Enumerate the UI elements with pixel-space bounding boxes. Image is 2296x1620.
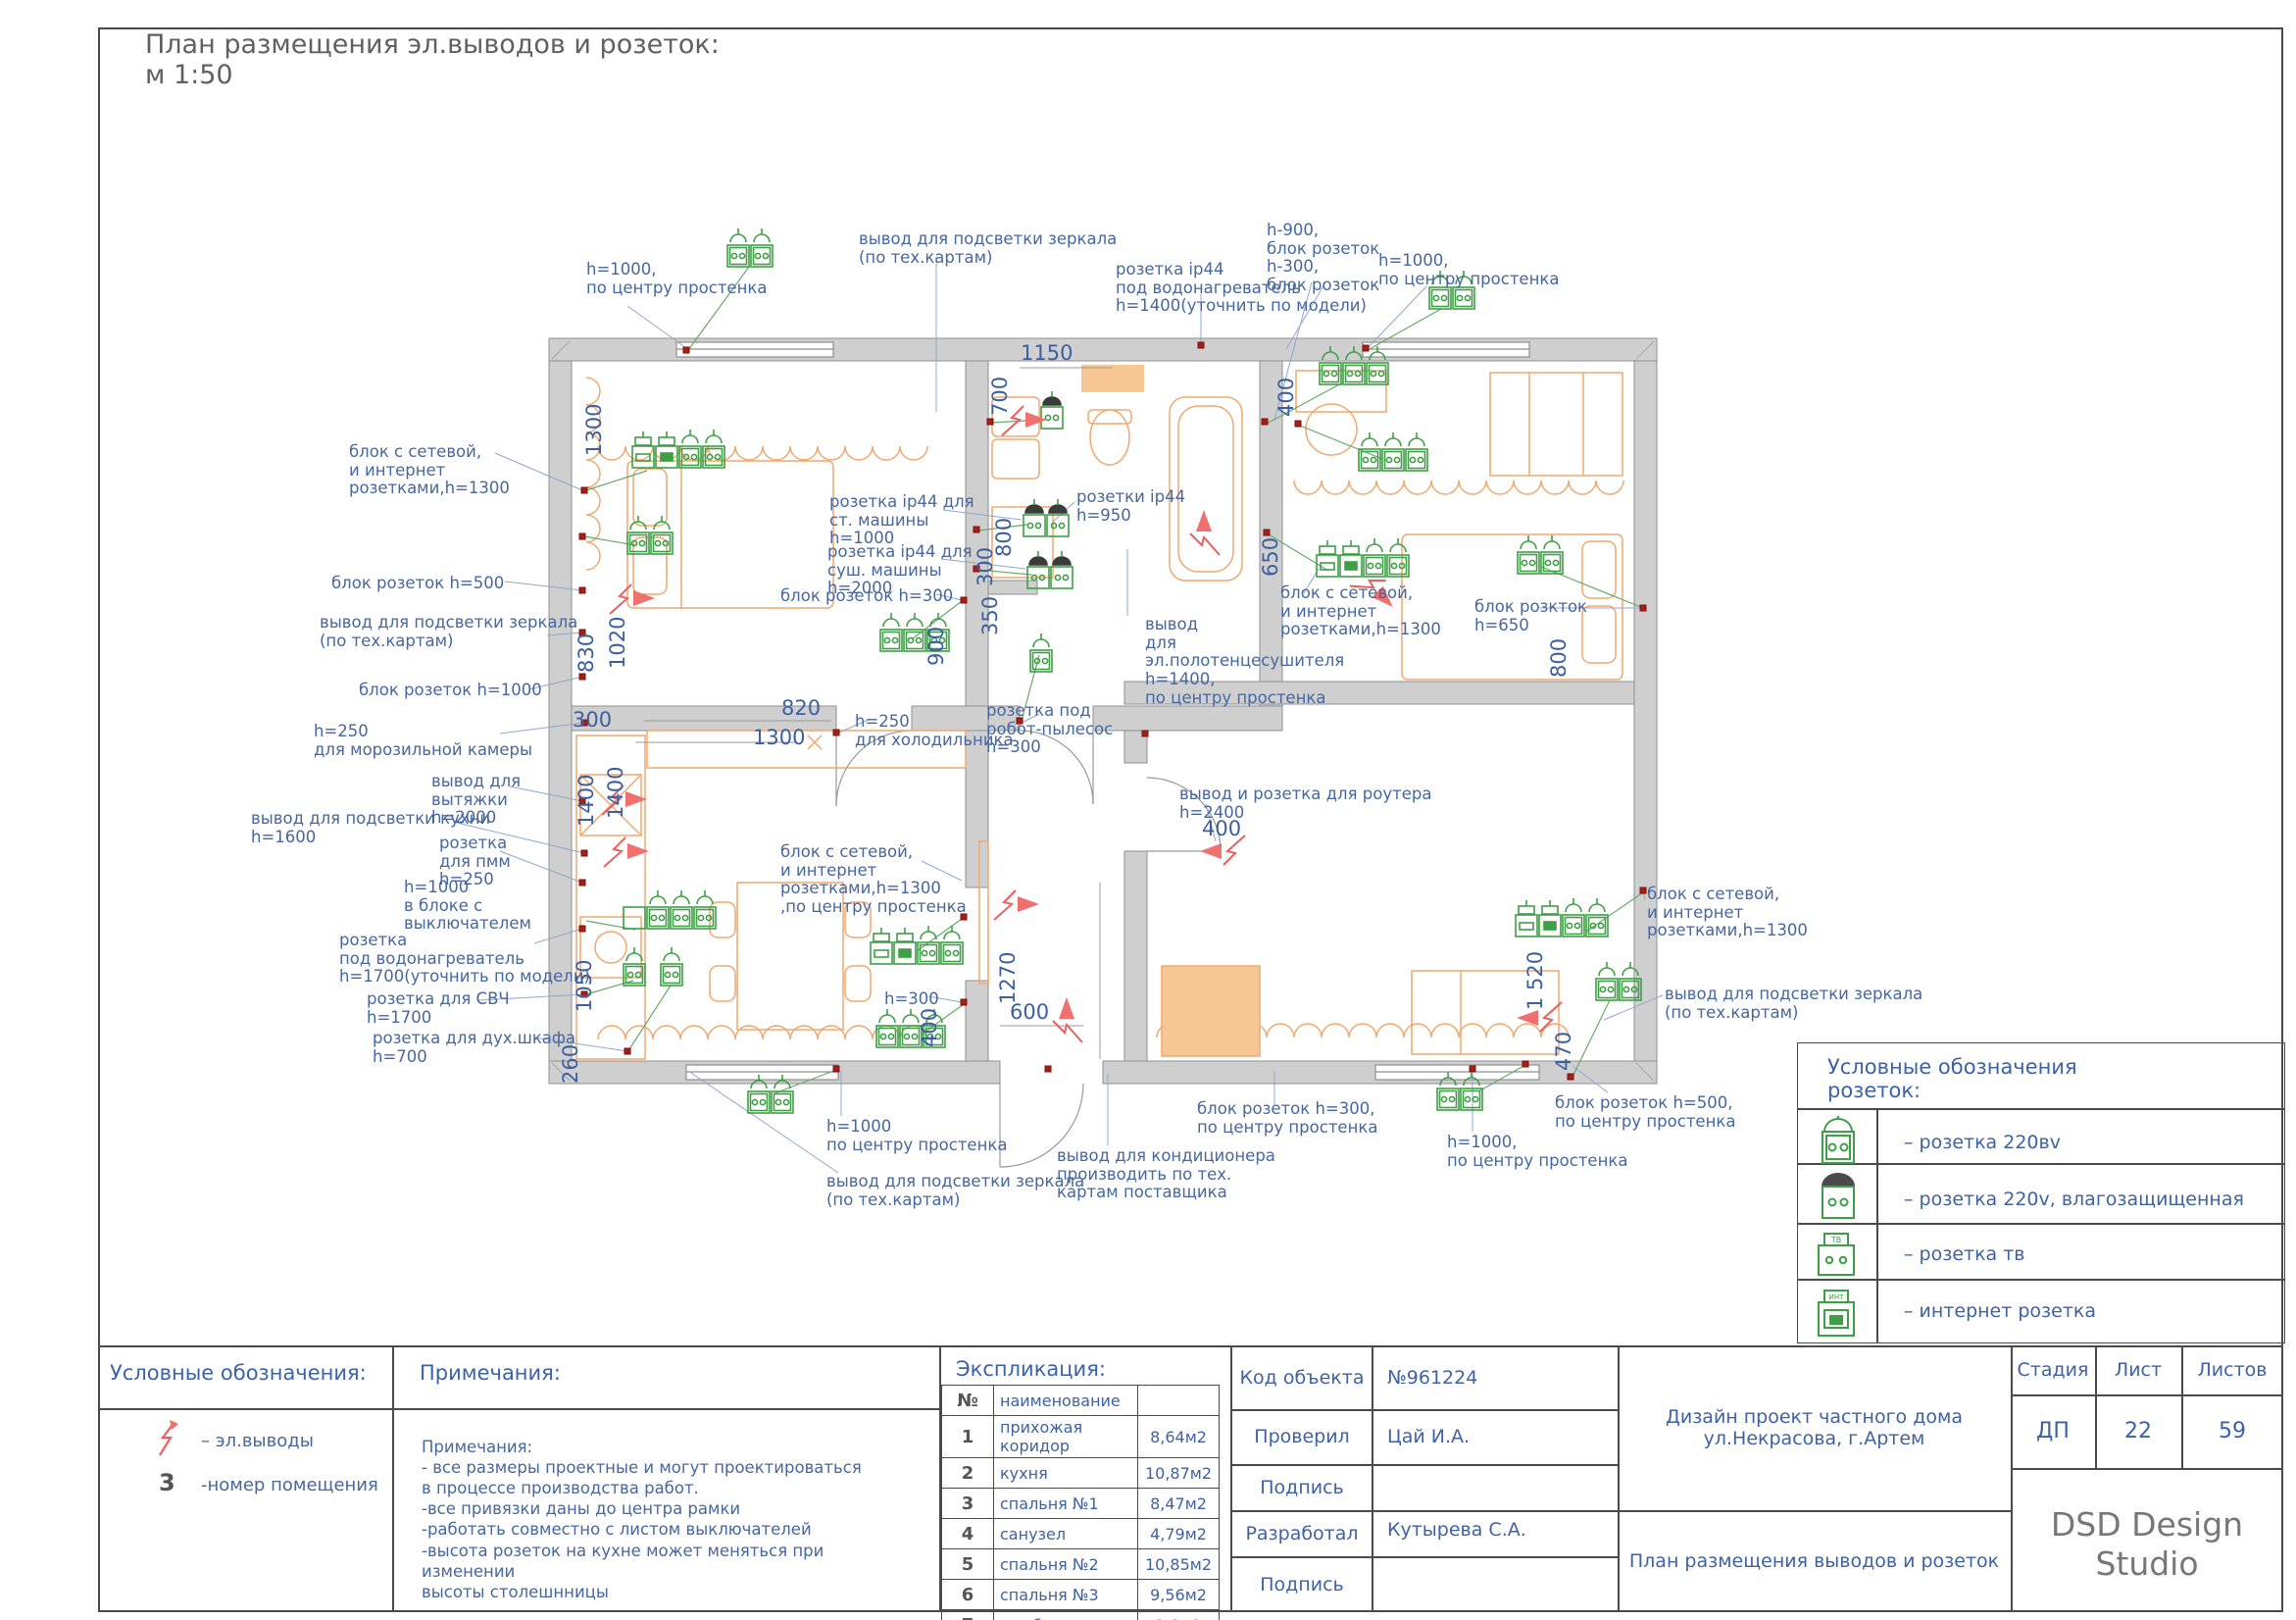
room-num: 1 xyxy=(942,1416,994,1458)
plan-annotation: розетка под водонагреватель h=1700(уточн… xyxy=(339,932,590,987)
plan-annotation: вывод для кондиционера производить по те… xyxy=(1057,1147,1275,1202)
notes-title: Примечания: xyxy=(420,1361,561,1385)
dimension-label: 400 xyxy=(918,1008,941,1047)
table-row: 6спальня №39,56м2 xyxy=(942,1580,1220,1610)
plan-annotation: блок розеток h=500, по центру простенка xyxy=(1555,1094,1735,1131)
dimension-label: 300 xyxy=(573,708,612,732)
socket-legend: Условные обозначения розеток: – розетка … xyxy=(1797,1042,2285,1343)
table-header-row: № наименование xyxy=(942,1386,1220,1416)
plan-annotation: вывод для подсветки зеркала (по тех.карт… xyxy=(859,230,1117,267)
sheets-label: Листов xyxy=(2181,1345,2283,1394)
plan-annotation: h=1000, по центру простенка xyxy=(1447,1134,1627,1170)
sheets-value: 59 xyxy=(2181,1394,2283,1468)
socket-block-icon xyxy=(1320,346,1388,384)
socket-220v-waterproof-icon xyxy=(1814,1169,1863,1224)
dimension-label: 650 xyxy=(1259,537,1282,577)
internet-icon-label: ИНТ xyxy=(1829,1293,1845,1301)
room-area: 8,47м2 xyxy=(1138,1489,1220,1519)
dimension-label: 820 xyxy=(781,696,821,720)
col-header-area xyxy=(1138,1386,1220,1416)
plan-annotation: h=300 xyxy=(884,990,939,1009)
socket-block-icon xyxy=(1041,391,1063,429)
socket-220v-icon xyxy=(1814,1116,1863,1167)
signature-label: Подпись xyxy=(1232,1556,1372,1612)
room-name: спальня №1 xyxy=(994,1489,1138,1519)
electrical-output-icon xyxy=(610,584,655,614)
room-num: 6 xyxy=(942,1580,994,1610)
studio-name: DSD Design Studio xyxy=(2011,1505,2283,1583)
dimension-label: 470 xyxy=(1552,1032,1575,1071)
dimension-label: 600 xyxy=(1010,1000,1049,1024)
plan-annotation: блок с сетевой, и интернет розетками,h=1… xyxy=(349,443,510,498)
plan-annotation: h-900, блок розеток h-300, блок розеток xyxy=(1267,222,1379,295)
room-num: 3 xyxy=(942,1489,994,1519)
socket-block-icon xyxy=(1359,432,1427,471)
legend-item-label: – розетка 220вv xyxy=(1904,1132,2061,1153)
developed-label: Разработал xyxy=(1232,1510,1372,1556)
col-header-name: наименование xyxy=(994,1386,1138,1416)
room-name: санузел xyxy=(994,1519,1138,1549)
dimension-label: 1020 xyxy=(606,617,629,669)
socket-internet-icon: ИНТ xyxy=(1812,1287,1867,1342)
plan-annotation: розетки ip44 h=950 xyxy=(1076,488,1185,525)
room-name: спальня №3 xyxy=(994,1580,1138,1610)
electrical-output-icon xyxy=(994,890,1039,920)
dimension-label: 400 xyxy=(1274,378,1298,417)
explication-title: Экспликация: xyxy=(956,1357,1106,1381)
plan-annotation: блок розкток h=650 xyxy=(1474,598,1587,634)
table-row: 7коз.блок1,8м2 xyxy=(942,1610,1220,1620)
dimension-label: 800 xyxy=(992,518,1016,557)
dimension-label: 350 xyxy=(978,596,1002,635)
room-num: 4 xyxy=(942,1519,994,1549)
object-code-value: №961224 xyxy=(1387,1345,1613,1409)
table-row: 4санузел4,79м2 xyxy=(942,1519,1220,1549)
room-num: 2 xyxy=(942,1458,994,1489)
plan-annotation: h=1000 по центру простенка xyxy=(826,1118,1007,1154)
electrical-output-icon xyxy=(155,1420,184,1459)
checked-label: Проверил xyxy=(1232,1409,1372,1464)
socket-block-icon xyxy=(624,890,716,929)
drawing-sheet: План размещения эл.выводов и розеток: м … xyxy=(0,0,2296,1620)
plan-annotation: блок розеток h=500 xyxy=(331,575,504,593)
dimension-label: 1300 xyxy=(753,726,805,749)
legend-item-label: – интернет розетка xyxy=(1904,1300,2096,1322)
room-area: 10,85м2 xyxy=(1138,1549,1220,1580)
room-area: 10,87м2 xyxy=(1138,1458,1220,1489)
table-row: 1прихожая коридор8,64м2 xyxy=(942,1416,1220,1458)
room-area: 9,56м2 xyxy=(1138,1580,1220,1610)
dimension-label: 1400 xyxy=(604,767,627,819)
project-name: Дизайн проект частного дома ул.Некрасова… xyxy=(1620,1345,2009,1510)
room-name: коз.блок xyxy=(994,1610,1138,1620)
plan-annotation: h=1000, по центру простенка xyxy=(1378,252,1559,288)
sheet-title: План размещения выводов и розеток xyxy=(1620,1510,2009,1612)
developed-value: Кутырева С.А. xyxy=(1387,1506,1613,1552)
plan-annotation: вывод для подсветки зеркала (по тех.карт… xyxy=(826,1173,1084,1209)
tv-icon-label: ТВ xyxy=(1830,1236,1841,1244)
electrical-output-icon xyxy=(1190,510,1220,555)
plan-annotation: блок розеток h=300 xyxy=(780,587,953,606)
plan-annotation: блок с сетевой, и интернет розетками,h=1… xyxy=(780,843,967,917)
socket-block-icon xyxy=(1518,535,1563,574)
electrical-output-icon xyxy=(1053,997,1082,1042)
symbol-item-label: -номер помещения xyxy=(201,1476,378,1495)
object-code-label: Код объекта xyxy=(1232,1345,1372,1409)
room-num: 7 xyxy=(942,1610,994,1620)
dimension-label: 800 xyxy=(1547,638,1571,678)
socket-block-icon xyxy=(1317,538,1409,577)
notes-body: Примечания: - все размеры проектные и мо… xyxy=(422,1437,922,1602)
dimension-label: 1300 xyxy=(582,404,606,456)
dimension-label: 260 xyxy=(559,1044,582,1084)
symbols-title: Условные обозначения: xyxy=(110,1361,367,1385)
sheet-label: Лист xyxy=(2095,1345,2181,1394)
plan-annotation: вывод для подсветки зеркала (по тех.карт… xyxy=(320,614,577,650)
plan-annotation: блок с сетевой, и интернет розетками,h=1… xyxy=(1647,886,1808,940)
dimension-label: 1 520 xyxy=(1523,951,1547,1010)
stage-label: Стадия xyxy=(2011,1345,2095,1394)
socket-block-icon xyxy=(661,947,682,986)
legend-item-label: – розетка тв xyxy=(1904,1243,2025,1265)
symbol-item-label: – эл.выводы xyxy=(201,1432,314,1451)
socket-block-icon xyxy=(871,926,963,964)
dimension-label: 900 xyxy=(924,627,948,666)
plan-annotation: блок розеток h=300, по центру простенка xyxy=(1197,1100,1377,1137)
explication-table: № наименование 1прихожая коридор8,64м2 2… xyxy=(941,1385,1220,1620)
legend-item-label: – розетка 220v, влагозащищенная xyxy=(1904,1189,2244,1210)
room-area: 8,64м2 xyxy=(1138,1416,1220,1458)
plan-annotation: вывод для подсветки зеркала (по тех.карт… xyxy=(1665,986,1922,1022)
room-name: прихожая коридор xyxy=(994,1416,1138,1458)
plan-annotation: розетка для СВЧ h=1700 xyxy=(367,990,510,1027)
room-number-symbol: 3 xyxy=(159,1469,175,1496)
plan-annotation: h=250 для холодильника xyxy=(855,713,1014,749)
table-row: 3спальня №18,47м2 xyxy=(942,1489,1220,1519)
col-header-num: № xyxy=(942,1386,994,1416)
plan-annotation: h=250 для морозильной камеры xyxy=(314,723,532,759)
room-area: 1,8м2 xyxy=(1138,1610,1220,1620)
socket-block-icon xyxy=(1023,499,1069,536)
room-name: кухня xyxy=(994,1458,1138,1489)
dimension-label: 830 xyxy=(574,633,598,673)
room-num: 5 xyxy=(942,1549,994,1580)
dimension-label: 400 xyxy=(1202,817,1241,840)
dimension-label: 1050 xyxy=(573,960,596,1012)
socket-block-icon xyxy=(1516,898,1608,937)
socket-tv-icon: ТВ xyxy=(1812,1230,1867,1281)
socket-block-icon xyxy=(632,430,724,468)
dimension-label: 700 xyxy=(988,377,1012,416)
plan-annotation: блок розеток h=1000 xyxy=(359,682,542,700)
table-row: 2кухня10,87м2 xyxy=(942,1458,1220,1489)
socket-block-icon xyxy=(1030,633,1052,672)
stage-value: ДП xyxy=(2011,1394,2095,1468)
plan-annotation: розетка ip44 для ст. машины h=1000 xyxy=(829,493,974,548)
plan-annotation: блок с сетевой, и интернет розетками,h=1… xyxy=(1280,584,1441,639)
socket-legend-title: Условные обозначения розеток: xyxy=(1827,1055,2077,1102)
dimension-label: 1150 xyxy=(1021,341,1073,365)
plan-annotation: h=1000, по центру простенка xyxy=(586,261,767,297)
electrical-output-icon xyxy=(604,837,649,867)
sheet-value: 22 xyxy=(2095,1394,2181,1468)
room-area: 4,79м2 xyxy=(1138,1519,1220,1549)
checked-value: Цай И.А. xyxy=(1387,1409,1613,1464)
dimension-label: 1400 xyxy=(574,775,598,827)
dimension-label: 1270 xyxy=(996,952,1020,1004)
plan-annotation: розетка для дух.шкафа h=700 xyxy=(373,1030,575,1066)
signature-label: Подпись xyxy=(1232,1464,1372,1510)
table-row: 5спальня №210,85м2 xyxy=(942,1549,1220,1580)
plan-annotation: h=1000 в блоке с выключателем xyxy=(404,879,531,934)
room-name: спальня №2 xyxy=(994,1549,1138,1580)
